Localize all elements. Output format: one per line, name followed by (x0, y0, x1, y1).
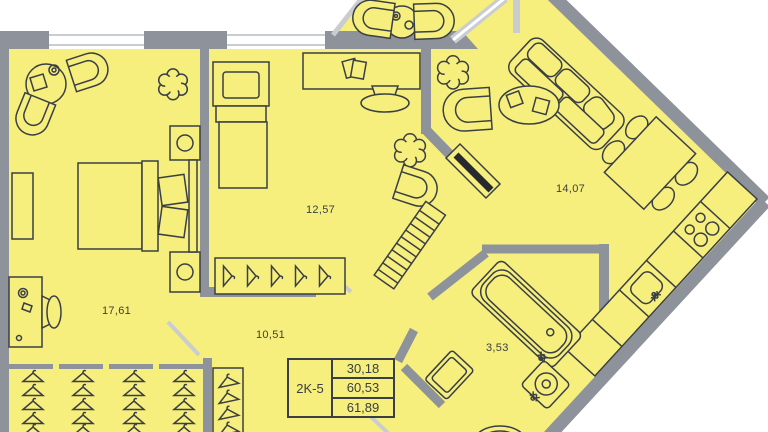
shelf-icon (12, 173, 33, 239)
room-label-living: 14,07 (556, 183, 585, 195)
room-label-hallway: 10,51 (256, 329, 285, 341)
armchair-icon (414, 3, 455, 40)
coffee-table-icon (499, 86, 559, 124)
window (227, 31, 325, 49)
room-label-bedroom: 17,61 (102, 305, 131, 317)
room-label-bathroom: 3,53 (486, 342, 509, 354)
floor-plan: 17,61 12,57 10,51 14,07 3,53 2K-5 30,18 … (0, 0, 768, 432)
nightstand-icon (170, 126, 200, 160)
area-value-total: 60,53 (333, 377, 393, 396)
wardrobe-icon (215, 258, 345, 294)
nightstand-icon (170, 252, 200, 292)
area-value-living: 30,18 (333, 360, 393, 377)
window (49, 31, 144, 49)
single-bed-icon (213, 62, 269, 188)
balcony-furniture (351, 0, 455, 39)
area-legend-table: 2K-5 30,18 60,53 61,89 (287, 358, 395, 418)
unit-code: 2K-5 (289, 360, 333, 416)
area-value-overall: 61,89 (333, 397, 393, 416)
room-label-child-room: 12,57 (306, 204, 335, 216)
